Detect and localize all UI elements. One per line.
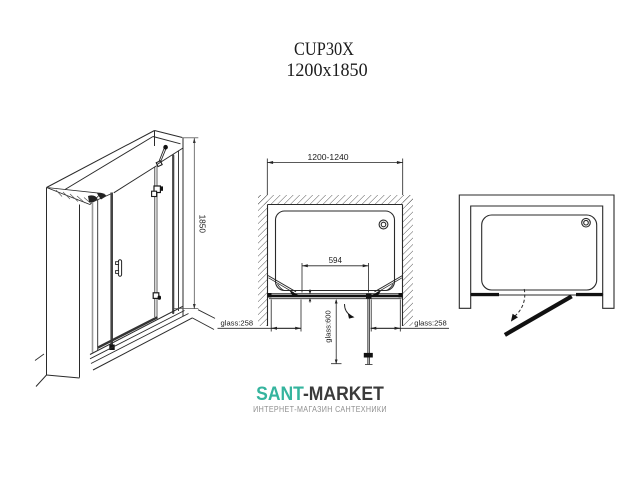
svg-text:glass:258: glass:258 bbox=[221, 318, 254, 327]
svg-text:1200-1240: 1200-1240 bbox=[307, 152, 348, 162]
svg-text:glass:258: glass:258 bbox=[414, 318, 447, 327]
svg-text:594: 594 bbox=[329, 256, 343, 265]
svg-text:glass:600: glass:600 bbox=[324, 310, 333, 343]
svg-text:1850: 1850 bbox=[198, 215, 208, 234]
